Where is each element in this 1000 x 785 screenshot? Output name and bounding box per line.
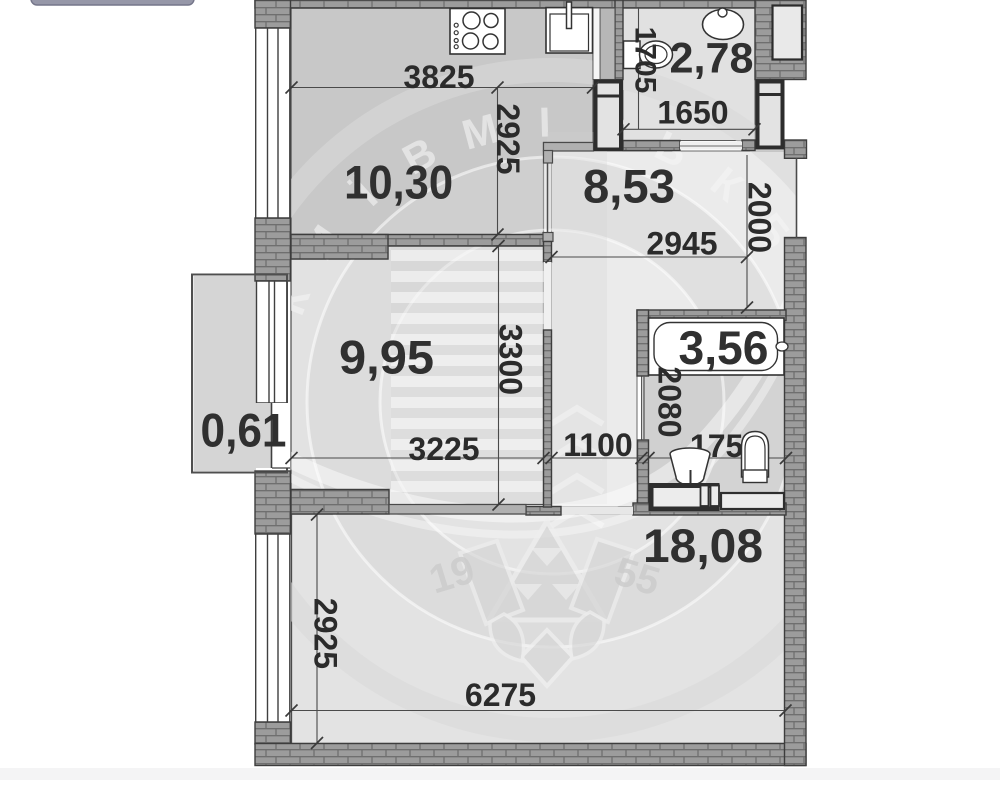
svg-text:10,30: 10,30 xyxy=(344,156,453,209)
svg-text:2080: 2080 xyxy=(652,366,688,437)
svg-text:3225: 3225 xyxy=(408,431,479,467)
svg-text:2000: 2000 xyxy=(742,182,778,253)
svg-text:9,95: 9,95 xyxy=(339,331,434,384)
svg-text:2945: 2945 xyxy=(646,226,717,262)
svg-text:2925: 2925 xyxy=(308,598,344,669)
svg-text:1650: 1650 xyxy=(657,95,728,131)
svg-text:1100: 1100 xyxy=(563,427,632,463)
svg-text:1705: 1705 xyxy=(629,27,662,94)
svg-text:3300: 3300 xyxy=(493,324,529,395)
svg-text:0,61: 0,61 xyxy=(201,404,287,457)
svg-text:8,53: 8,53 xyxy=(583,160,675,213)
svg-text:6275: 6275 xyxy=(465,677,536,713)
svg-text:3825: 3825 xyxy=(403,59,474,95)
svg-text:2,78: 2,78 xyxy=(670,35,754,83)
svg-text:2925: 2925 xyxy=(490,103,526,174)
svg-text:18,08: 18,08 xyxy=(643,519,763,572)
svg-text:3,56: 3,56 xyxy=(679,321,769,374)
